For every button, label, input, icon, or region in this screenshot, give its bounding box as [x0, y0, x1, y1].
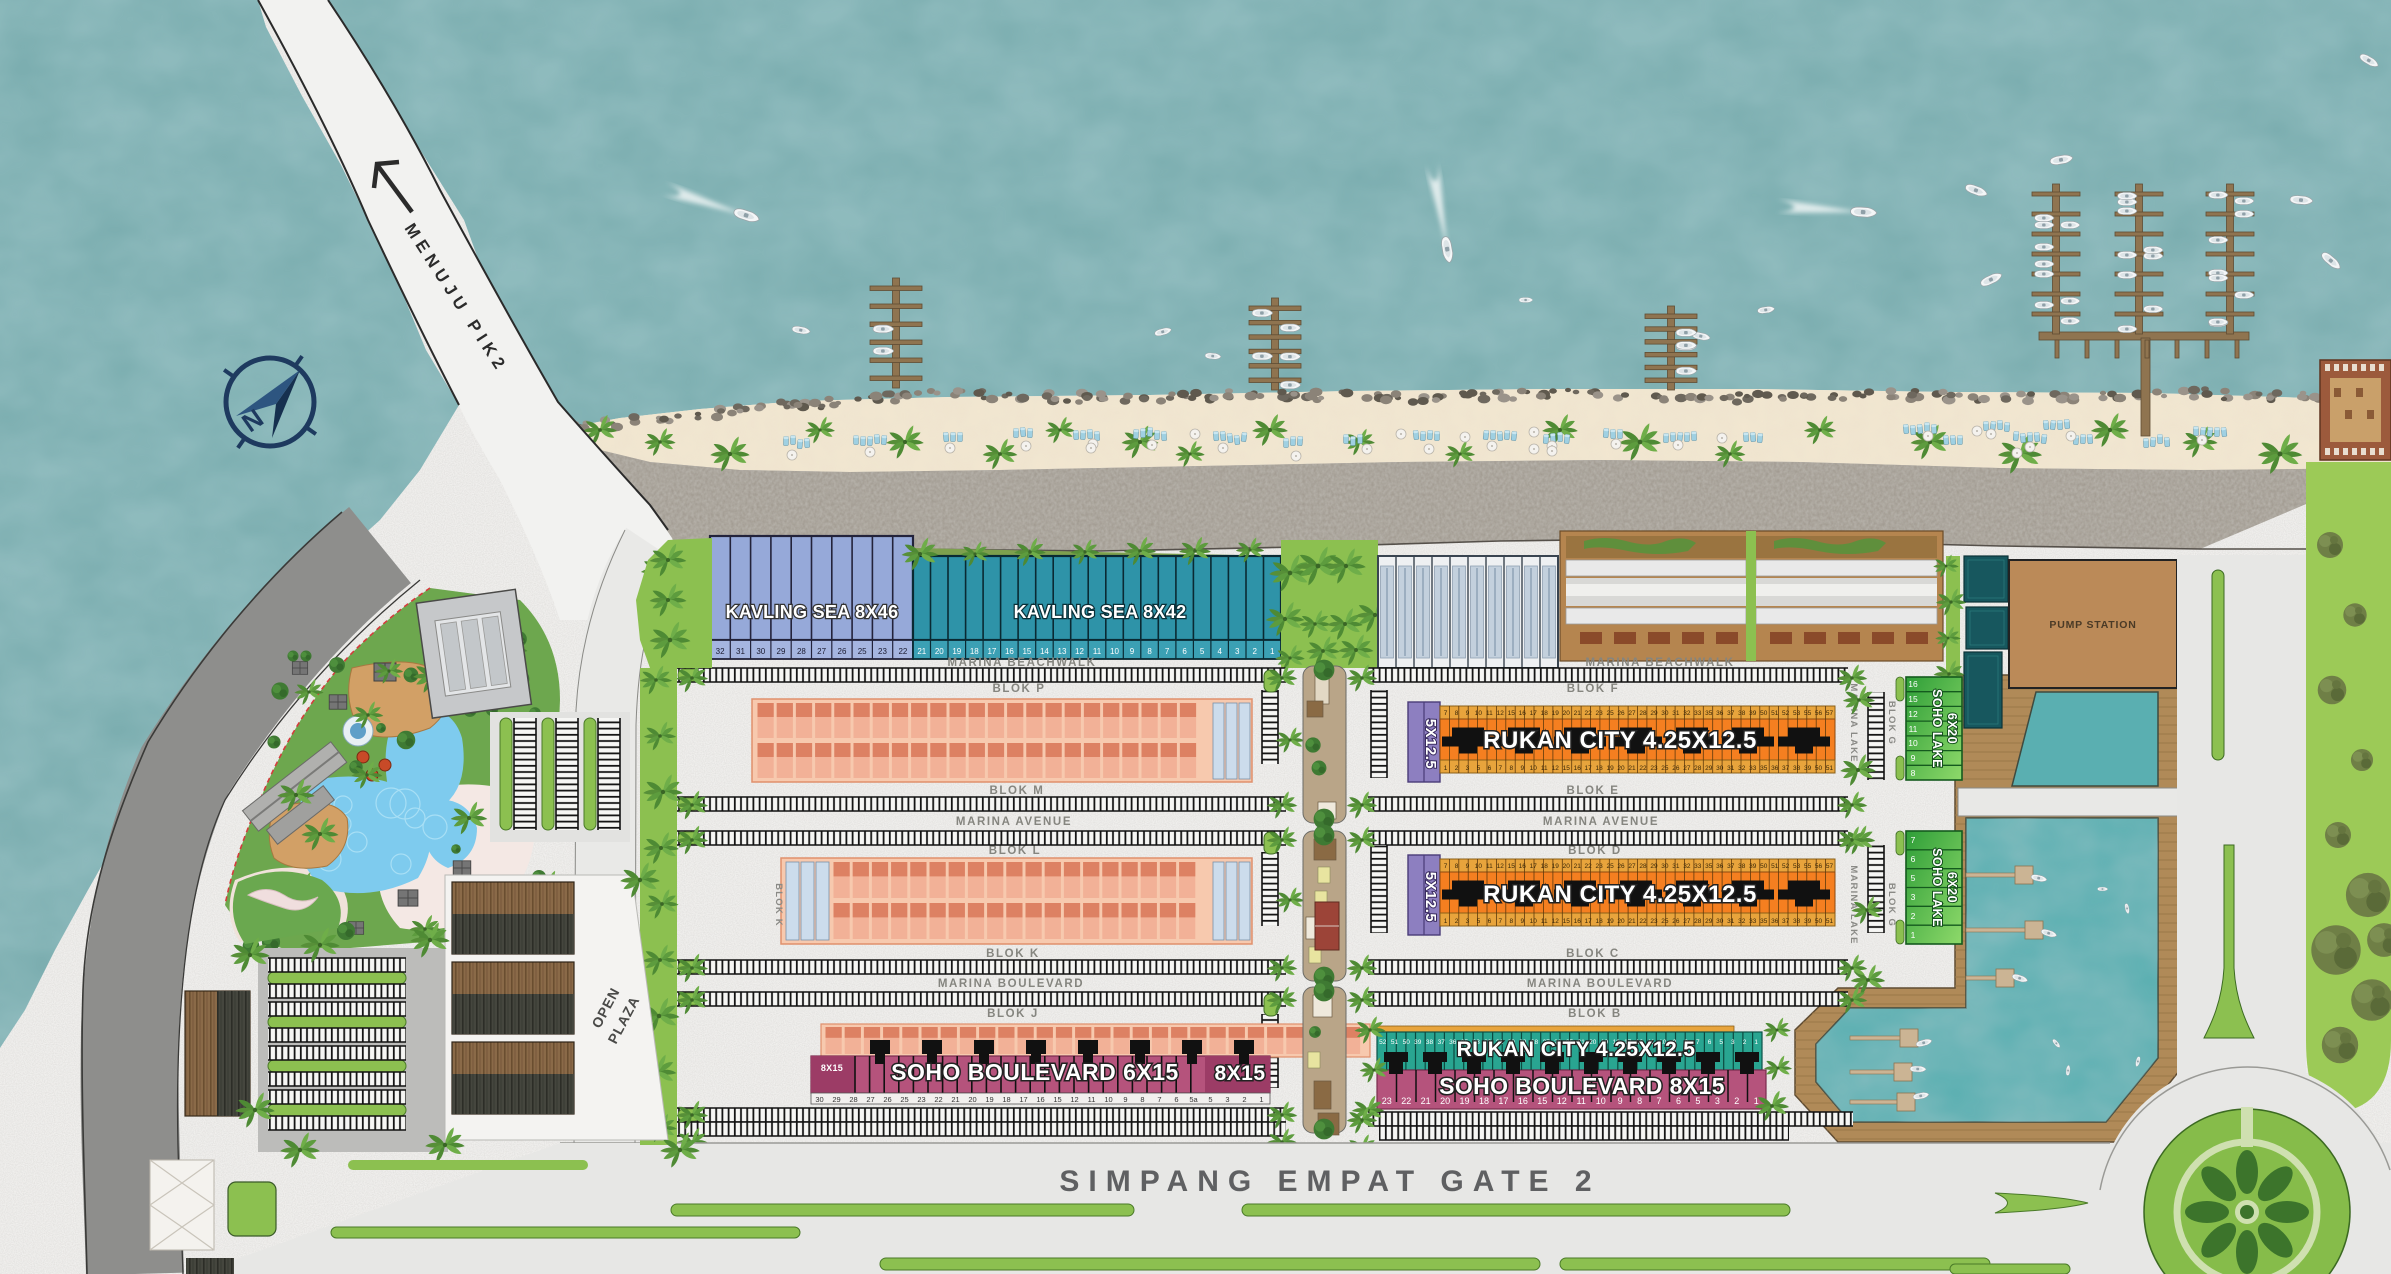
svg-text:15: 15	[1908, 694, 1918, 704]
svg-text:7: 7	[1696, 1039, 1700, 1046]
svg-text:PUMP STATION: PUMP STATION	[2049, 619, 2136, 631]
svg-text:2: 2	[1455, 765, 1459, 772]
svg-text:30: 30	[1716, 918, 1724, 925]
svg-text:37: 37	[1782, 765, 1790, 772]
svg-text:35: 35	[1705, 710, 1713, 717]
svg-text:12: 12	[1908, 709, 1918, 719]
svg-text:26: 26	[883, 1095, 891, 1104]
svg-text:15: 15	[1563, 765, 1571, 772]
svg-text:1: 1	[1444, 918, 1448, 925]
svg-text:7: 7	[1165, 647, 1170, 656]
svg-text:16: 16	[1005, 647, 1014, 656]
svg-text:29: 29	[777, 647, 786, 656]
svg-text:5: 5	[1208, 1095, 1212, 1104]
svg-text:7: 7	[1157, 1095, 1161, 1104]
svg-text:20: 20	[1563, 710, 1571, 717]
svg-text:27: 27	[817, 647, 826, 656]
svg-text:38: 38	[1738, 863, 1746, 870]
svg-text:11: 11	[1088, 1095, 1096, 1104]
svg-text:6X20: 6X20	[1945, 713, 1959, 744]
svg-text:22: 22	[1401, 1096, 1411, 1106]
svg-text:19: 19	[1552, 710, 1560, 717]
svg-text:11: 11	[1909, 724, 1918, 734]
svg-text:6: 6	[1174, 1095, 1178, 1104]
svg-text:37: 37	[1727, 863, 1735, 870]
svg-text:12: 12	[1075, 647, 1084, 656]
svg-text:29: 29	[832, 1095, 840, 1104]
svg-text:26: 26	[838, 647, 847, 656]
svg-text:BLOK C: BLOK C	[1566, 948, 1620, 960]
svg-text:36: 36	[1716, 863, 1724, 870]
svg-text:5: 5	[1477, 918, 1481, 925]
svg-text:10: 10	[1475, 863, 1483, 870]
svg-text:50: 50	[1815, 765, 1823, 772]
svg-text:39: 39	[1804, 918, 1812, 925]
svg-text:10: 10	[1530, 918, 1538, 925]
svg-text:12: 12	[1497, 710, 1505, 717]
svg-text:51: 51	[1771, 710, 1779, 717]
svg-text:31: 31	[1672, 710, 1680, 717]
svg-text:3: 3	[1731, 1039, 1735, 1046]
svg-text:19: 19	[1606, 765, 1614, 772]
svg-text:37: 37	[1727, 710, 1735, 717]
svg-text:4: 4	[1217, 647, 1222, 656]
svg-text:15: 15	[1508, 710, 1516, 717]
svg-text:30: 30	[1661, 710, 1669, 717]
svg-text:35: 35	[1705, 863, 1713, 870]
svg-text:MARINA BOULEVARD: MARINA BOULEVARD	[1527, 978, 1673, 990]
svg-text:10: 10	[1110, 647, 1119, 656]
svg-text:8X15: 8X15	[821, 1063, 843, 1073]
svg-text:38: 38	[1793, 765, 1801, 772]
svg-text:21: 21	[1574, 710, 1582, 717]
svg-text:39: 39	[1749, 710, 1757, 717]
svg-text:1: 1	[1754, 1039, 1758, 1046]
svg-text:28: 28	[1639, 863, 1647, 870]
svg-text:22: 22	[934, 1095, 942, 1104]
svg-text:22: 22	[1639, 765, 1647, 772]
svg-text:52: 52	[1379, 1039, 1387, 1046]
svg-text:21: 21	[917, 647, 926, 656]
svg-text:SOHO BOULEVARD 8X15: SOHO BOULEVARD 8X15	[1439, 1073, 1725, 1099]
svg-text:11: 11	[1541, 765, 1548, 772]
svg-text:7: 7	[1498, 765, 1502, 772]
svg-text:56: 56	[1815, 710, 1823, 717]
svg-text:36: 36	[1771, 765, 1779, 772]
svg-text:11: 11	[1541, 918, 1548, 925]
svg-text:19: 19	[985, 1095, 993, 1104]
svg-text:27: 27	[1628, 863, 1636, 870]
svg-text:38: 38	[1738, 710, 1746, 717]
svg-text:8: 8	[1509, 918, 1513, 925]
svg-text:25: 25	[1606, 710, 1614, 717]
svg-text:20: 20	[968, 1095, 976, 1104]
svg-text:27: 27	[866, 1095, 874, 1104]
svg-text:12: 12	[1552, 918, 1560, 925]
svg-text:5: 5	[1477, 765, 1481, 772]
svg-text:21: 21	[1421, 1096, 1431, 1106]
svg-text:57: 57	[1826, 710, 1834, 717]
svg-text:16: 16	[1574, 918, 1582, 925]
svg-text:25: 25	[1661, 765, 1669, 772]
svg-text:30: 30	[1716, 765, 1724, 772]
svg-text:20: 20	[1617, 765, 1625, 772]
svg-text:29: 29	[1650, 710, 1658, 717]
svg-text:28: 28	[1694, 765, 1702, 772]
svg-text:23: 23	[1595, 863, 1603, 870]
svg-text:8X15: 8X15	[1214, 1062, 1265, 1085]
svg-text:25: 25	[1661, 918, 1669, 925]
svg-text:16: 16	[1519, 710, 1527, 717]
svg-text:3: 3	[1466, 765, 1470, 772]
svg-text:25: 25	[1606, 863, 1614, 870]
svg-text:1: 1	[1270, 647, 1275, 656]
svg-text:21: 21	[1628, 918, 1636, 925]
svg-text:5a: 5a	[1189, 1095, 1198, 1104]
svg-text:20: 20	[1617, 918, 1625, 925]
svg-text:31: 31	[736, 647, 745, 656]
svg-text:SIMPANG EMPAT GATE 2: SIMPANG EMPAT GATE 2	[1059, 1165, 1600, 1198]
svg-text:BLOK M: BLOK M	[990, 785, 1045, 797]
svg-text:36: 36	[1449, 1039, 1457, 1046]
svg-text:30: 30	[815, 1095, 823, 1104]
svg-text:3: 3	[1235, 647, 1240, 656]
svg-text:51: 51	[1391, 1039, 1399, 1046]
svg-text:1: 1	[1259, 1095, 1263, 1104]
svg-text:22: 22	[1584, 710, 1592, 717]
svg-text:BLOK G: BLOK G	[1886, 701, 1897, 745]
svg-text:39: 39	[1749, 863, 1757, 870]
svg-text:32: 32	[1738, 918, 1746, 925]
svg-text:16: 16	[1574, 765, 1582, 772]
svg-text:SOHO LAKE: SOHO LAKE	[1930, 848, 1944, 927]
svg-text:51: 51	[1771, 863, 1779, 870]
svg-text:BLOK B: BLOK B	[1568, 1008, 1622, 1020]
svg-text:33: 33	[1749, 918, 1757, 925]
svg-text:13: 13	[1058, 647, 1067, 656]
svg-text:33: 33	[1694, 863, 1702, 870]
svg-text:22: 22	[1639, 918, 1647, 925]
svg-text:18: 18	[1595, 765, 1603, 772]
svg-text:28: 28	[849, 1095, 857, 1104]
svg-text:BLOK D: BLOK D	[1568, 845, 1622, 857]
svg-text:3: 3	[1225, 1095, 1229, 1104]
svg-text:55: 55	[1804, 710, 1812, 717]
svg-text:6: 6	[1911, 854, 1916, 864]
svg-text:6: 6	[1182, 647, 1187, 656]
svg-text:8: 8	[1455, 863, 1459, 870]
svg-text:5: 5	[1911, 873, 1916, 883]
svg-text:17: 17	[1584, 918, 1592, 925]
svg-text:23: 23	[878, 647, 887, 656]
svg-text:23: 23	[1595, 710, 1603, 717]
svg-text:31: 31	[1727, 918, 1735, 925]
svg-text:5: 5	[1200, 647, 1205, 656]
svg-text:17: 17	[1584, 765, 1592, 772]
svg-text:52: 52	[1782, 710, 1790, 717]
svg-text:12: 12	[1552, 765, 1560, 772]
svg-text:16: 16	[1519, 863, 1527, 870]
svg-text:29: 29	[1705, 765, 1713, 772]
svg-text:11: 11	[1486, 863, 1493, 870]
svg-text:33: 33	[1749, 765, 1757, 772]
svg-text:17: 17	[1019, 1095, 1027, 1104]
svg-text:10: 10	[1908, 738, 1918, 748]
svg-text:35: 35	[1760, 765, 1768, 772]
svg-text:39: 39	[1414, 1039, 1422, 1046]
svg-text:52: 52	[1782, 863, 1790, 870]
svg-text:23: 23	[1650, 765, 1658, 772]
svg-text:8: 8	[1911, 768, 1916, 778]
svg-text:5X12.5: 5X12.5	[1422, 872, 1439, 923]
svg-text:51: 51	[1826, 918, 1834, 925]
svg-text:RUKAN CITY 4.25X12.5: RUKAN CITY 4.25X12.5	[1483, 727, 1757, 754]
svg-text:19: 19	[1552, 863, 1560, 870]
svg-text:19: 19	[952, 647, 961, 656]
svg-text:29: 29	[1650, 863, 1658, 870]
svg-text:38: 38	[1793, 918, 1801, 925]
svg-text:BLOK E: BLOK E	[1566, 785, 1619, 797]
svg-text:MARINA BOULEVARD: MARINA BOULEVARD	[938, 978, 1084, 990]
svg-text:15: 15	[1508, 863, 1516, 870]
svg-text:RUKAN CITY 4.25X12.5: RUKAN CITY 4.25X12.5	[1483, 881, 1757, 908]
svg-text:MARINA AVENUE: MARINA AVENUE	[956, 816, 1072, 828]
svg-text:17: 17	[987, 647, 996, 656]
svg-text:9: 9	[1466, 863, 1470, 870]
svg-text:38: 38	[1426, 1039, 1434, 1046]
svg-text:51: 51	[1826, 765, 1834, 772]
svg-text:27: 27	[1628, 710, 1636, 717]
svg-text:10: 10	[1104, 1095, 1112, 1104]
svg-text:50: 50	[1760, 863, 1768, 870]
svg-text:KAVLING SEA 8X46: KAVLING SEA 8X46	[726, 602, 899, 622]
svg-text:9: 9	[1520, 765, 1524, 772]
svg-text:25: 25	[900, 1095, 908, 1104]
svg-text:BLOK L: BLOK L	[989, 845, 1041, 857]
svg-text:56: 56	[1815, 863, 1823, 870]
svg-text:5: 5	[1719, 1039, 1723, 1046]
svg-text:57: 57	[1826, 863, 1834, 870]
svg-text:5X12.5: 5X12.5	[1422, 719, 1439, 770]
svg-text:9: 9	[1123, 1095, 1127, 1104]
svg-text:22: 22	[898, 647, 907, 656]
svg-text:BLOK J: BLOK J	[987, 1008, 1039, 1020]
svg-text:15: 15	[1053, 1095, 1061, 1104]
svg-text:32: 32	[716, 647, 725, 656]
svg-text:18: 18	[970, 647, 979, 656]
svg-text:28: 28	[1639, 710, 1647, 717]
svg-text:19: 19	[1606, 918, 1614, 925]
svg-text:7: 7	[1444, 863, 1448, 870]
svg-text:BLOK K: BLOK K	[986, 948, 1040, 960]
svg-text:21: 21	[1628, 765, 1636, 772]
svg-text:35: 35	[1760, 918, 1768, 925]
svg-text:37: 37	[1438, 1039, 1446, 1046]
svg-text:16: 16	[1908, 679, 1918, 689]
svg-text:26: 26	[1672, 918, 1680, 925]
svg-text:2: 2	[1455, 918, 1459, 925]
svg-text:23: 23	[1650, 918, 1658, 925]
svg-text:27: 27	[1683, 918, 1691, 925]
svg-text:8: 8	[1509, 765, 1513, 772]
svg-text:SOHO BOULEVARD 6X15: SOHO BOULEVARD 6X15	[891, 1059, 1179, 1085]
svg-text:RUKAN CITY 4.25X12.5: RUKAN CITY 4.25X12.5	[1457, 1038, 1696, 1061]
svg-text:11: 11	[1093, 647, 1102, 656]
svg-text:2: 2	[1734, 1096, 1739, 1106]
svg-text:31: 31	[1672, 863, 1680, 870]
svg-text:2: 2	[1911, 911, 1916, 921]
svg-text:12: 12	[1070, 1095, 1078, 1104]
svg-text:9: 9	[1520, 918, 1524, 925]
svg-text:7: 7	[1498, 918, 1502, 925]
svg-text:8: 8	[1147, 647, 1152, 656]
svg-text:32: 32	[1683, 710, 1691, 717]
svg-text:55: 55	[1804, 863, 1812, 870]
svg-text:23: 23	[1382, 1096, 1392, 1106]
svg-text:36: 36	[1771, 918, 1779, 925]
svg-text:26: 26	[1617, 710, 1625, 717]
svg-text:28: 28	[1694, 918, 1702, 925]
svg-text:32: 32	[1738, 765, 1746, 772]
svg-text:22: 22	[1584, 863, 1592, 870]
svg-text:15: 15	[1022, 647, 1031, 656]
svg-text:37: 37	[1782, 918, 1790, 925]
svg-text:25: 25	[858, 647, 867, 656]
svg-text:8: 8	[1140, 1095, 1144, 1104]
svg-text:9: 9	[1466, 710, 1470, 717]
svg-text:26: 26	[1617, 863, 1625, 870]
svg-text:17: 17	[1530, 710, 1538, 717]
svg-text:50: 50	[1815, 918, 1823, 925]
svg-text:30: 30	[756, 647, 765, 656]
svg-text:1: 1	[1911, 930, 1916, 940]
svg-text:31: 31	[1727, 765, 1735, 772]
svg-text:BLOK F: BLOK F	[1567, 683, 1619, 695]
svg-text:21: 21	[951, 1095, 959, 1104]
svg-text:BLOK G: BLOK G	[1886, 883, 1897, 927]
svg-text:18: 18	[1541, 863, 1549, 870]
svg-text:6: 6	[1488, 918, 1492, 925]
svg-text:6: 6	[1708, 1039, 1712, 1046]
svg-text:21: 21	[1574, 863, 1582, 870]
svg-text:18: 18	[1595, 918, 1603, 925]
svg-text:3: 3	[1911, 892, 1916, 902]
svg-text:11: 11	[1486, 710, 1493, 717]
svg-text:KAVLING SEA 8X42: KAVLING SEA 8X42	[1014, 602, 1187, 622]
svg-text:12: 12	[1497, 863, 1505, 870]
svg-text:10: 10	[1475, 710, 1483, 717]
svg-text:28: 28	[797, 647, 806, 656]
svg-text:7: 7	[1911, 835, 1916, 845]
svg-text:SOHO LAKE: SOHO LAKE	[1930, 689, 1944, 768]
svg-text:2: 2	[1743, 1039, 1747, 1046]
svg-text:1: 1	[1444, 765, 1448, 772]
svg-text:MARINA AVENUE: MARINA AVENUE	[1543, 816, 1659, 828]
svg-text:2: 2	[1252, 647, 1257, 656]
svg-text:2: 2	[1242, 1095, 1246, 1104]
svg-text:14: 14	[1040, 647, 1049, 656]
svg-text:8: 8	[1455, 710, 1459, 717]
svg-text:BLOK K: BLOK K	[773, 883, 784, 927]
svg-text:50: 50	[1403, 1039, 1411, 1046]
svg-text:20: 20	[1563, 863, 1571, 870]
svg-text:16: 16	[1036, 1095, 1044, 1104]
svg-text:9: 9	[1911, 753, 1916, 763]
svg-text:9: 9	[1130, 647, 1135, 656]
svg-text:3: 3	[1466, 918, 1470, 925]
svg-text:15: 15	[1563, 918, 1571, 925]
svg-text:17: 17	[1530, 863, 1538, 870]
svg-text:36: 36	[1716, 710, 1724, 717]
svg-text:39: 39	[1804, 765, 1812, 772]
svg-text:50: 50	[1760, 710, 1768, 717]
svg-text:32: 32	[1683, 863, 1691, 870]
svg-text:10: 10	[1530, 765, 1538, 772]
svg-text:6: 6	[1488, 765, 1492, 772]
svg-text:20: 20	[935, 647, 944, 656]
svg-text:53: 53	[1793, 710, 1801, 717]
svg-text:7: 7	[1444, 710, 1448, 717]
svg-text:29: 29	[1705, 918, 1713, 925]
svg-text:BLOK P: BLOK P	[992, 683, 1045, 695]
svg-text:27: 27	[1683, 765, 1691, 772]
svg-text:18: 18	[1002, 1095, 1010, 1104]
svg-text:18: 18	[1541, 710, 1549, 717]
svg-text:53: 53	[1793, 863, 1801, 870]
svg-text:26: 26	[1672, 765, 1680, 772]
svg-text:33: 33	[1694, 710, 1702, 717]
svg-text:23: 23	[917, 1095, 925, 1104]
svg-text:30: 30	[1661, 863, 1669, 870]
svg-text:6X20: 6X20	[1945, 872, 1959, 903]
